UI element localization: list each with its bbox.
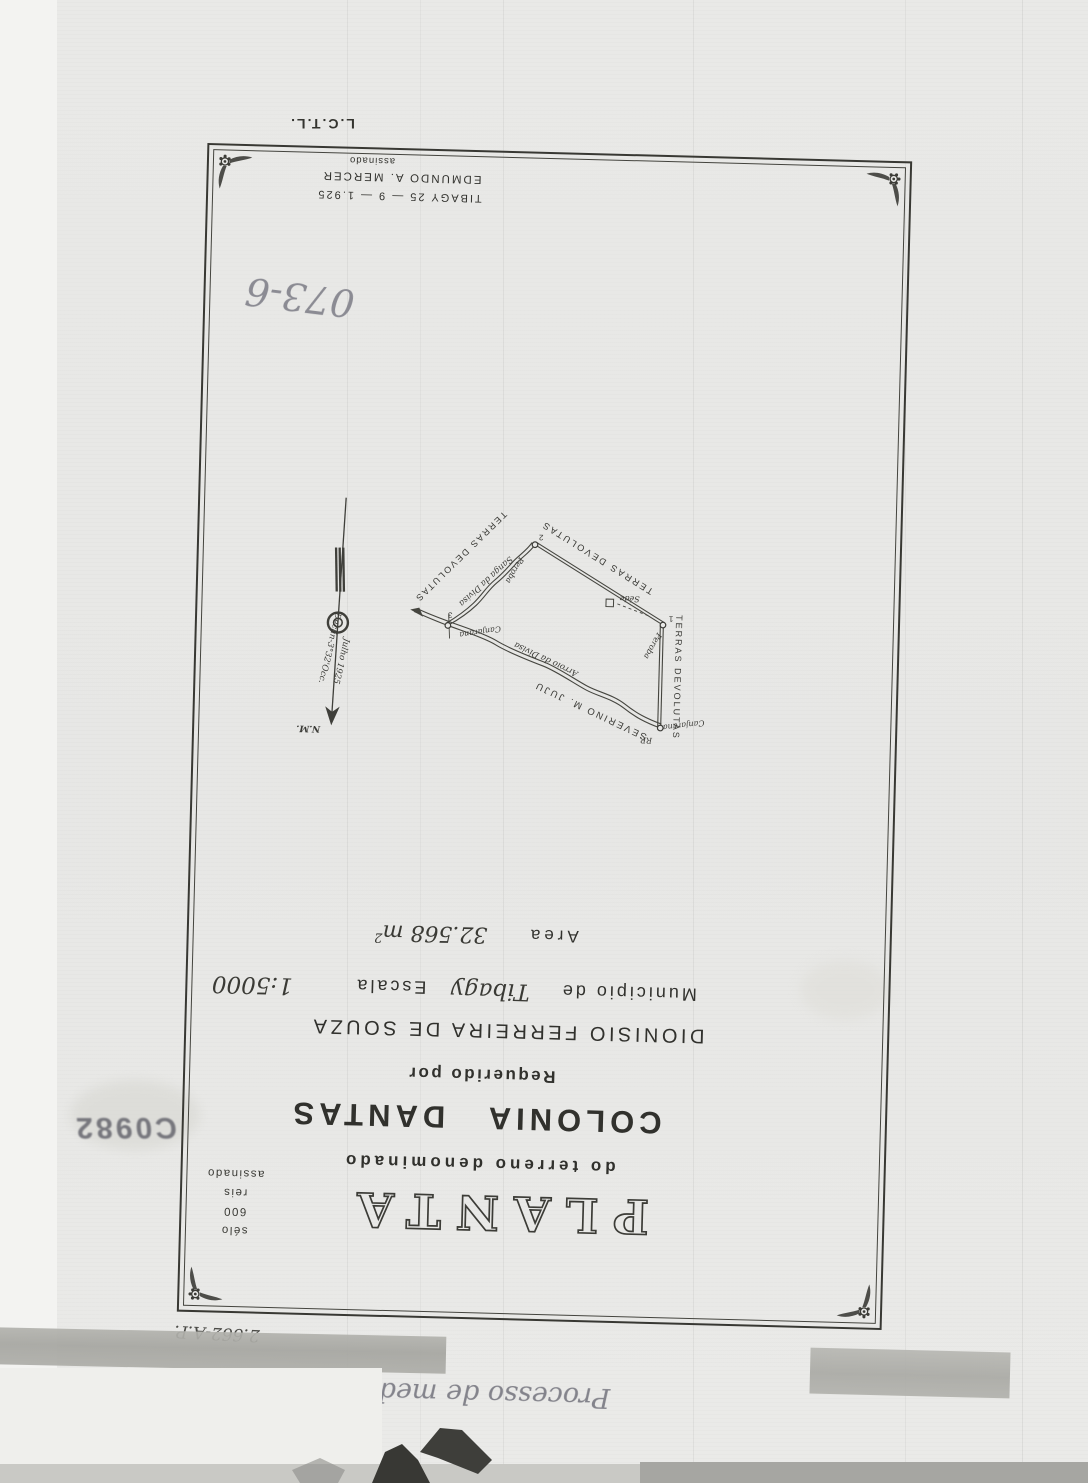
corner-marker	[445, 623, 451, 629]
scanned-survey-document: { "colors": { "paper": "#e8e8e6", "ink":…	[0, 0, 1088, 1483]
corner4-tree-label: Canjarana	[662, 718, 705, 732]
compass: N.M. Declin-3°32'Occ. Julho 1925	[296, 497, 355, 734]
corner-marker	[532, 542, 538, 548]
neighbor-label: SEVERINO M. JUJU	[533, 679, 649, 742]
scan-bottom-band-dark	[640, 1462, 1088, 1483]
document-content-flipped: sélo 600 reis assinado PLANTA do terreno…	[177, 143, 912, 1330]
scan-edge-strip	[0, 0, 57, 1483]
stream-arroio-label: Arroio da Divisa	[513, 639, 581, 678]
compass-needle-line	[331, 497, 346, 722]
dark-artifact	[420, 1428, 492, 1474]
terras-devolutas-label: TERRAS DEVOLUTAS	[413, 510, 509, 605]
corner3-number: 3	[447, 610, 452, 619]
tape-strip	[0, 1327, 446, 1373]
corner2-number: 2	[538, 533, 543, 542]
homestead-square-icon	[606, 599, 614, 607]
stream-arrow-icon	[410, 607, 423, 616]
rp-label: RP.	[640, 735, 654, 744]
survey-plot-drawing: TERRAS DEVOLUTAS TERRAS DEVOLUTAS TERRAS…	[177, 143, 912, 1330]
tape-strip	[809, 1348, 1010, 1399]
corner3-tree-label: Canjarana	[459, 624, 502, 639]
corner-marker	[660, 622, 666, 628]
paper-bottom-light-area	[0, 1368, 382, 1483]
compass-tail-hatch	[335, 547, 345, 591]
document-frame: sélo 600 reis assinado PLANTA do terreno…	[177, 143, 912, 1330]
corner1-tree-label: Peroba	[642, 631, 664, 661]
corner1-number: 1	[668, 614, 673, 623]
registry-stamp-number: C0982	[72, 1110, 178, 1144]
corner-marker	[657, 725, 663, 731]
north-label: N.M.	[296, 723, 321, 734]
signature-note: assinado	[349, 154, 395, 166]
corner-classification-mark: L.C.T.L.	[289, 116, 355, 132]
stream-arroio-line	[414, 609, 664, 724]
paper-edge-line	[1022, 0, 1023, 1483]
homestead-label: Séde	[619, 594, 640, 604]
